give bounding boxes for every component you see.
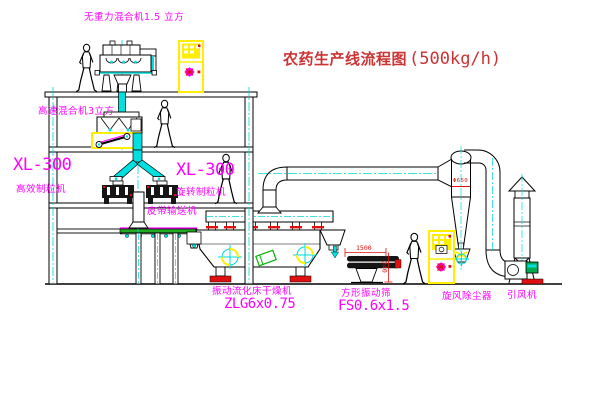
title-capacity: (500kg/h) bbox=[409, 49, 501, 69]
granulator-left bbox=[102, 181, 134, 204]
control-cabinet-ground bbox=[429, 231, 454, 283]
conveyor-support-columns bbox=[136, 233, 178, 284]
fluid-bed-dryer bbox=[187, 211, 345, 282]
label-high-speed-mixer: 高速混合机3立方 bbox=[38, 107, 115, 117]
zero-gravity-mixer bbox=[95, 41, 157, 92]
y-branch-pipe bbox=[110, 150, 165, 181]
label-fan: 引风机 bbox=[507, 291, 537, 301]
cyclone-outlet-pipe bbox=[464, 150, 512, 277]
flange-marks bbox=[206, 226, 324, 228]
label-cyclone: 旋风除尘器 bbox=[442, 292, 492, 302]
sieve-motor bbox=[395, 260, 401, 269]
dimension-sieve-height: 340 bbox=[381, 261, 388, 273]
dryer-exhaust-pipe bbox=[258, 159, 452, 213]
induced-draft-fan bbox=[505, 261, 543, 284]
label-zero-gravity-mixer: 无重力混合机1.5 立方 bbox=[84, 13, 184, 23]
label-granulator-center-name: 旋转制粒机 bbox=[176, 188, 226, 198]
label-dryer-model: ZLG6x0.75 bbox=[224, 297, 295, 312]
title-text: 农药生产线流程图 bbox=[283, 49, 407, 70]
drawing-title: 农药生产线流程图 (500kg/h) bbox=[283, 49, 501, 70]
label-belt-conveyor: 皮带输送机 bbox=[147, 207, 197, 217]
label-granulator-left-model: XL-300 bbox=[13, 157, 71, 175]
high-speed-mixer bbox=[92, 112, 142, 150]
label-sieve-model: FS0.6x1.5 bbox=[338, 299, 409, 314]
person-figure bbox=[403, 233, 425, 283]
vibrating-sieve bbox=[347, 256, 401, 283]
mixer-down-pipe bbox=[119, 92, 126, 113]
cad-process-flow-drawing: 无重力混合机1.5 立方 农药生产线流程图 (500kg/h) 高速混合机3立方… bbox=[0, 0, 600, 403]
dimension-sieve-length: 1500 bbox=[356, 245, 372, 252]
label-granulator-center-model: XL-300 bbox=[176, 162, 234, 180]
control-cabinet-roof bbox=[179, 41, 203, 92]
person-figure bbox=[154, 100, 174, 147]
granulator-right bbox=[146, 181, 178, 204]
label-granulator-left-name: 高效制粒机 bbox=[16, 185, 66, 195]
dimension-cyclone-diameter: Φ650 bbox=[453, 179, 468, 185]
person-figure bbox=[76, 44, 96, 91]
